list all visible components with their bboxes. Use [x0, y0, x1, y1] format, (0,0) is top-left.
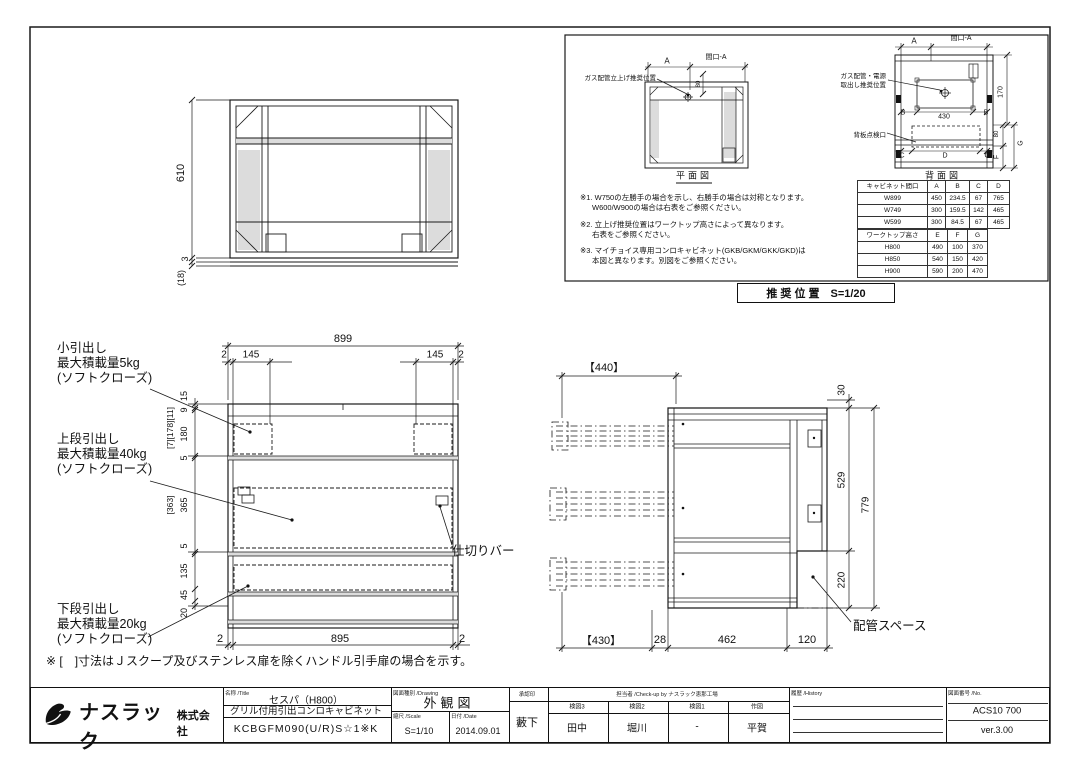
- check3-header: 検図3: [569, 702, 584, 711]
- drafter-name: 平賀: [747, 720, 767, 735]
- drawing-version: ver.3.00: [981, 725, 1013, 735]
- table-cell: 150: [948, 254, 968, 266]
- label-upper-drawer-line3: (ソフトクローズ): [57, 458, 152, 477]
- table-cell: H800: [858, 242, 928, 254]
- title-block-divider: [391, 688, 392, 742]
- dim-30: 30: [837, 384, 848, 395]
- recommended-position-label: 推 奨 位 置 S=1/20: [766, 285, 865, 301]
- table-header: キャビネット間口: [858, 181, 928, 193]
- table-cell: 465: [988, 217, 1010, 229]
- dim-rear-c-left: C: [899, 153, 904, 160]
- table-cell: 470: [968, 266, 988, 278]
- view-title-plan: 平面図: [676, 169, 712, 184]
- table-cell: 300: [928, 205, 946, 217]
- title-block-divider: [223, 688, 224, 742]
- dim-365: 365: [179, 497, 189, 512]
- dim-895: 895: [331, 633, 349, 645]
- dim-rear-430: 430: [938, 114, 950, 121]
- number-line: [948, 720, 1048, 721]
- note-2-line2: 右表をご参照ください。: [592, 229, 675, 240]
- title-block-divider: [509, 688, 510, 742]
- table-header: G: [968, 230, 988, 242]
- company-name: ナスラック: [79, 696, 173, 754]
- table-header: E: [928, 230, 948, 242]
- dim-alt-7-178-11: [7][178][11]: [165, 407, 175, 449]
- dim-120: 120: [798, 634, 816, 646]
- table-cell: 765: [988, 193, 1010, 205]
- check3-name: 田中: [567, 720, 587, 735]
- scale-value: S=1/10: [405, 726, 434, 736]
- dim-899: 899: [334, 333, 352, 345]
- approval-header: 承認印: [519, 690, 536, 698]
- table-header: F: [948, 230, 968, 242]
- table-cell: 590: [928, 266, 948, 278]
- title-block-divider: [608, 701, 609, 742]
- table-header: B: [946, 181, 970, 193]
- dim-rear-b-left: B: [901, 110, 906, 117]
- model-number: KCBGFM090(U/R)S☆1※K: [234, 723, 379, 735]
- dim-145-left: 145: [243, 350, 260, 361]
- title-block-divider: [789, 688, 790, 742]
- company-suffix: 株式会社: [177, 707, 216, 739]
- dim-rear-a: A: [911, 37, 916, 46]
- bracket-dimension-note: ※ [ ]寸法はＪスクープ及びステンレス扉を除くハンドル引手扉の場合を示す。: [46, 652, 472, 669]
- table-cell: H900: [858, 266, 928, 278]
- dim-440: 【440】: [584, 359, 624, 375]
- history-line: [793, 732, 943, 733]
- table-cell: 67: [970, 193, 988, 205]
- dim-220: 220: [837, 572, 848, 589]
- dim-plan-a: A: [664, 57, 669, 66]
- dim-2-left: 2: [221, 350, 227, 361]
- table-cell: 200: [948, 266, 968, 278]
- table-cell: W899: [858, 193, 928, 205]
- table-cell: W749: [858, 205, 928, 217]
- drawing-sheet: 610 3 (18) 小引出し 最大積載量5kg (ソフトクローズ) 上段引出し…: [0, 0, 1080, 763]
- title-block-line: [223, 717, 391, 718]
- table-cell: 450: [928, 193, 946, 205]
- check2-header: 検図2: [629, 702, 644, 711]
- dim-28: 28: [654, 634, 666, 646]
- dim-9: 9: [179, 407, 189, 412]
- drafter-header: 作図: [751, 702, 763, 711]
- table-cell: 67: [970, 217, 988, 229]
- dim-610: 610: [175, 164, 187, 182]
- label-back-inspection: 背板点検口: [826, 129, 886, 139]
- worktop-height-table: ワークトップ高さ E F G H800 490 100 370 H850 540…: [857, 229, 988, 278]
- approval-name: 藪下: [516, 714, 538, 730]
- table-cell: 540: [928, 254, 948, 266]
- dim-18: (18): [176, 270, 186, 286]
- table-header: C: [970, 181, 988, 193]
- table-cell: 159.5: [946, 205, 970, 217]
- dim-2-right: 2: [458, 350, 464, 361]
- history-line: [793, 706, 943, 707]
- dim-rear-d: D: [942, 153, 947, 160]
- label-piping-space: 配管スペース: [853, 615, 927, 634]
- dim-529: 529: [837, 472, 848, 489]
- dim-alt-363: [363]: [165, 496, 175, 515]
- dim-plan-80: 80: [696, 81, 702, 88]
- dim-20: 20: [179, 608, 189, 618]
- dim-145-right: 145: [427, 350, 444, 361]
- drawing-number: ACS10 700: [973, 706, 1022, 717]
- dim-rear-b-right: B: [984, 110, 989, 117]
- dim-135: 135: [179, 563, 189, 578]
- title-block-divider: [548, 688, 549, 742]
- table-header: A: [928, 181, 946, 193]
- dim-rear-80: 80: [994, 131, 1000, 138]
- title-block-divider: [728, 701, 729, 742]
- scale-header: 縮尺 /Scale: [393, 712, 421, 720]
- table-cell: 234.5: [946, 193, 970, 205]
- history-line: [793, 719, 943, 720]
- table-header: D: [988, 181, 1010, 193]
- dim-5a: 5: [179, 455, 189, 460]
- name-header: 名称 /Title: [225, 689, 249, 697]
- title-block-divider: [668, 701, 669, 742]
- table-cell: 142: [970, 205, 988, 217]
- note-3-line2: 本図と異なります。別図をご参照ください。: [592, 255, 741, 266]
- dim-rear-c-right: C: [984, 153, 989, 160]
- dim-rear-mouth-a: 間口-A: [951, 33, 972, 43]
- table-cell: 300: [928, 217, 946, 229]
- note-1-line2: W600/W900の場合は右表をご参照ください。: [592, 202, 746, 213]
- product-title: グリル付用引出コンロキャビネット: [230, 703, 382, 717]
- dim-2-bottom-right: 2: [459, 633, 465, 645]
- dim-plan-mouth-a: 間口-A: [706, 52, 727, 62]
- drawing-type: 外観図: [423, 693, 474, 712]
- number-line: [948, 703, 1048, 704]
- check1-header: 検図1: [689, 702, 704, 711]
- table-cell: W599: [858, 217, 928, 229]
- table-cell: 465: [988, 205, 1010, 217]
- dim-5b: 5: [179, 543, 189, 548]
- title-block-divider: [946, 688, 947, 742]
- dim-2-bottom-left: 2: [217, 633, 223, 645]
- dim-45: 45: [179, 590, 189, 600]
- swan-logo-icon: [41, 699, 75, 734]
- title-block-line: [509, 701, 548, 702]
- dim-15: 15: [179, 391, 189, 401]
- table-cell: H850: [858, 254, 928, 266]
- dim-462: 462: [718, 634, 736, 646]
- dim-rear-f: F: [994, 155, 1001, 159]
- title-block-divider: [449, 711, 450, 742]
- drawing-linework: [0, 0, 1080, 763]
- dim-779: 779: [861, 497, 872, 514]
- date-header: 日付 /Date: [451, 712, 477, 720]
- title-block: ナスラック 株式会社: [30, 687, 1050, 743]
- dim-430: 【430】: [581, 632, 621, 648]
- table-cell: 84.5: [946, 217, 970, 229]
- date-value: 2014.09.01: [455, 726, 500, 736]
- dim-rear-170: 170: [998, 86, 1005, 98]
- label-divider-bar: 仕切りバー: [452, 540, 515, 559]
- table-header: ワークトップ高さ: [858, 230, 928, 242]
- dim-180: 180: [179, 426, 189, 441]
- label-gas-power-line2: 取出し推奨位置: [806, 79, 886, 89]
- table-cell: 100: [948, 242, 968, 254]
- staff-header: 担当者 /Check-up by ナスラック恵那工場: [616, 690, 717, 698]
- label-lower-drawer-line3: (ソフトクローズ): [57, 628, 152, 647]
- company-logo: ナスラック 株式会社: [41, 696, 216, 736]
- table-cell: 420: [968, 254, 988, 266]
- table-cell: 370: [968, 242, 988, 254]
- check2-name: 堀川: [627, 720, 647, 735]
- cabinet-opening-table: キャビネット間口 A B C D W899 450 234.5 67 765 W…: [857, 180, 1010, 229]
- drawing-number-header: 図面番号 /No.: [948, 689, 982, 697]
- history-header: 履歴 /History: [791, 689, 822, 697]
- dim-rear-g: G: [1018, 140, 1025, 145]
- label-small-drawer-line3: (ソフトクローズ): [57, 367, 152, 386]
- table-cell: 490: [928, 242, 948, 254]
- check1-name: -: [695, 722, 698, 733]
- dim-3: 3: [180, 256, 190, 261]
- label-gas-riser: ガス配管立上げ推奨位置: [578, 72, 656, 82]
